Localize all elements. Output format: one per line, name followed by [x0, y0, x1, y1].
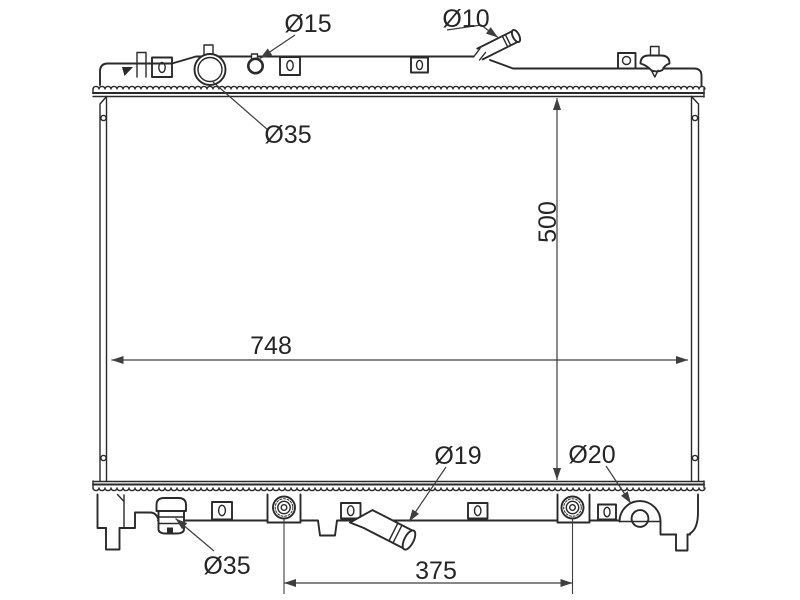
label-d35-top: Ø35: [264, 121, 311, 149]
label-d35-bottom: Ø35: [203, 552, 250, 580]
left-side-plate: [100, 97, 107, 482]
mounting-bracket: [341, 503, 361, 519]
drawing-canvas: Ø15 Ø10 Ø35 748 500 Ø19 Ø20 Ø35 375: [0, 0, 800, 600]
top-header-joint: [93, 86, 705, 97]
bottom-tank: [98, 495, 699, 552]
label-height-500: 500: [534, 201, 562, 243]
mounting-bracket: [618, 53, 636, 69]
mounting-bracket: [152, 58, 172, 78]
mounting-foot-right: [676, 535, 688, 551]
label-d10: Ø10: [442, 5, 489, 33]
right-side-plate: [692, 97, 699, 482]
leader-lines: [176, 25, 632, 551]
filler-neck-d35: [195, 45, 226, 85]
mounting-bracket: [598, 505, 616, 520]
mounting-foot-left: [106, 528, 120, 550]
label-d20: Ø20: [568, 441, 615, 469]
bottom-header-joint: [93, 481, 705, 491]
mounting-bracket: [468, 503, 488, 519]
label-span-375: 375: [415, 557, 457, 585]
drain-cap-d35: [157, 498, 187, 534]
pin-boss-left: [268, 495, 301, 523]
top-tank: [100, 29, 702, 86]
pin-hole-arch-d20: [620, 501, 661, 527]
pin-boss-right: [558, 495, 590, 523]
mounting-pin-top: [641, 47, 670, 78]
label-d19: Ø19: [434, 442, 481, 470]
mounting-bracket: [212, 502, 232, 520]
mounting-bracket: [280, 57, 300, 75]
label-width-748: 748: [250, 332, 292, 360]
inlet-pipe-d10: [474, 29, 522, 60]
radiator-technical-drawing: Ø15 Ø10 Ø35 748 500 Ø19 Ø20 Ø35 375: [0, 0, 800, 600]
mounting-bracket: [411, 58, 428, 73]
top-tab-pin: [137, 53, 146, 78]
label-d15: Ø15: [284, 10, 331, 38]
outlet-pipe-d19: [350, 510, 418, 551]
weld-mark: [122, 67, 133, 76]
